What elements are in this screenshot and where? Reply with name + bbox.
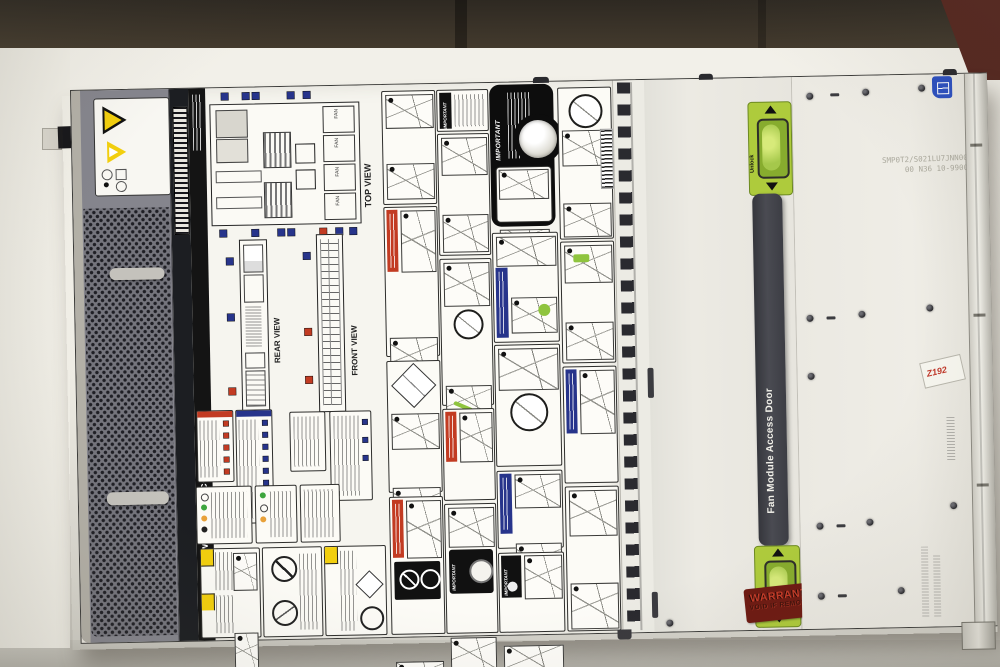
instruction-step [443,262,490,307]
instruction-step [400,210,436,273]
cpu-box [295,143,315,163]
handwritten-note: Z192 [926,362,959,379]
mounting-rail [964,73,998,625]
top-view-label: TOP VIEW [362,123,374,207]
rail-foot [961,621,996,650]
photo-of-server: System Overview and Service Information … [0,0,1000,667]
screw [950,502,957,509]
callout-marker [288,229,295,236]
callout-marker-red [306,376,313,383]
instruction-step [441,137,488,176]
instruction-panel [492,232,560,343]
instruction-panel [565,486,622,632]
prohibition-icon [360,606,384,630]
top-cover: SMP0T2/S021LU7JNN00001 00 N36 10-9900 01 [792,73,997,629]
callout-marker-red [305,328,312,335]
fan-box-label: FAN [334,138,340,148]
prohibition-icon [399,569,419,589]
important-note-box: IMPORTANT [449,549,494,594]
unlock-label: Unlock [749,133,756,173]
instruction-step [504,645,565,667]
lift-warning-box [200,547,262,638]
instruction-panel [389,496,446,635]
instruction-step [571,583,620,630]
blue-info-sticker [932,76,952,98]
fan-box-label: FAN [335,167,341,177]
instruction-step [406,500,442,559]
instruction-step [499,169,550,200]
screw [808,373,815,380]
instruction-step [566,322,615,361]
screw [818,593,825,600]
instruction-panel [562,366,618,484]
door-hinge-clip [652,592,658,618]
instruction-step [564,245,613,284]
server-chassis: System Overview and Service Information … [70,72,997,644]
callout-marker [303,91,310,98]
unlock-latch-top: Unlock [747,101,793,196]
instruction-panel [437,133,491,256]
important-label: IMPORTANT [494,91,502,161]
unlock-arrow-icon [766,182,778,190]
instruction-panel [442,408,496,501]
detail-magnifier [568,94,603,129]
dimm-bank [263,132,292,169]
fan-door-label: Fan Module Access Door [761,234,777,514]
detail-magnifier [510,393,549,432]
instruction-step [496,236,557,267]
instruction-panel [494,344,562,467]
instruction-step [569,490,618,537]
important-note-box: IMPORTANT [501,555,522,597]
micro-stamp [933,554,941,616]
hinge-barcode-label [600,129,614,189]
callout-marker-red [229,388,236,395]
diamond-icon [355,570,383,598]
instruction-step [391,413,440,450]
instruction-step [563,203,612,238]
handwritten-sticker: Z192 [919,354,966,389]
slot-mark [826,316,835,319]
riser-box [216,196,262,209]
rear-view-diagram [239,239,270,412]
fan-box: FAN [322,106,355,134]
callout-marker [252,229,259,236]
important-label: IMPORTANT [503,558,509,596]
warning-triangle-icon [104,110,121,130]
caution-pictograms [102,168,162,191]
instruction-panel [439,258,494,406]
screw [816,523,823,530]
psu-box [215,110,248,139]
front-view-label: FRONT VIEW [349,292,360,376]
fan-box-label: FAN [333,109,339,119]
dimm-bank [264,182,293,219]
callout-marker [278,229,285,236]
callout-marker [303,252,310,259]
latch-button [757,118,790,179]
thumbscrew [943,69,957,75]
instruction-step [448,507,495,548]
instruction-panel [496,470,563,549]
instruction-step [511,297,558,334]
instruction-step [514,474,561,509]
callout-marker [226,258,233,265]
callout-marker [221,93,228,100]
prohibition-icon [272,600,298,626]
instruction-panel: IMPORTANT [444,503,498,634]
slot-mark [838,594,847,597]
screw [918,85,925,92]
bezel-warning-label [93,97,171,196]
callout-marker [252,92,259,99]
shelf-seam [758,0,766,48]
instruction-step [386,163,435,200]
callout-marker [227,314,234,321]
slot-mark [836,524,845,527]
detail-magnifier [453,309,484,340]
status-indicator-legend [196,486,253,545]
serial-stamp: SMP0T2/S021LU7JNN00001 00 N36 10-9900 01 [841,152,982,183]
fan-box: FAN [324,193,357,221]
unlock-arrow-icon [764,105,776,113]
front-view-diagram [316,234,346,412]
instruction-panel [383,206,440,357]
service-note-microtext [192,94,202,150]
instruction-step [442,214,489,253]
instruction-step [396,661,445,667]
unlock-arrow-icon [772,548,784,556]
status-indicator-legend [255,485,298,544]
lift-warning-box [324,545,388,636]
instruction-panel [381,90,437,205]
background-shelf [0,0,1000,48]
important-label: IMPORTANT [451,553,457,591]
fan-box-label: FAN [335,196,341,206]
psu-box [216,139,248,164]
screw [898,587,905,594]
front-bezel [71,89,180,643]
callout-marker [242,93,249,100]
instruction-step [451,637,498,667]
micro-stamp [946,416,955,460]
riser-box [216,170,262,183]
screw [866,519,873,526]
clock-icon [469,559,493,583]
fan-box: FAN [323,135,356,163]
instruction-panel [386,360,443,493]
rear-view-label: REAR VIEW [272,287,282,363]
screw [858,311,865,318]
hazard-pictogram-box [262,546,324,637]
thumbscrew [699,74,713,80]
instruction-panel: IMPORTANT [498,552,566,633]
screw [926,304,933,311]
instruction-step [579,370,615,435]
instruction-step [498,348,559,391]
micro-stamp [921,547,929,617]
esd-warning-box [394,561,441,600]
warning-triangle-outline-inner [109,147,118,157]
edge-clip [617,629,631,639]
screw [862,89,869,96]
shelf-seam [455,0,467,48]
instruction-panel [560,241,616,364]
slot-mark [830,93,839,96]
callout-marker [350,228,357,235]
callout-marker [220,230,227,237]
callout-marker [287,92,294,99]
instruction-step [524,555,563,600]
bezel-handle-bar [109,267,164,280]
prohibition-icon [271,556,297,582]
prohibition-icon [420,569,440,589]
fan-box: FAN [323,164,356,192]
barcode-label [172,107,189,235]
misc-legend [289,411,326,472]
screw [666,620,673,627]
hot-service-legend [196,410,234,483]
top-view-diagram: FAN FAN FAN FAN [209,101,361,226]
thumbscrew [533,77,549,83]
screw [806,315,813,322]
important-label: IMPORTANT [442,95,448,129]
status-indicator-legend [300,484,341,543]
instruction-step [385,94,434,129]
screw [806,93,813,100]
bezel-handle-bar [107,491,169,505]
door-hinge-clip [647,368,654,398]
open-cover-diamond [391,363,436,408]
instruction-step [459,412,493,463]
important-note-panel: IMPORTANT [436,89,489,132]
cpu-box [296,169,316,189]
